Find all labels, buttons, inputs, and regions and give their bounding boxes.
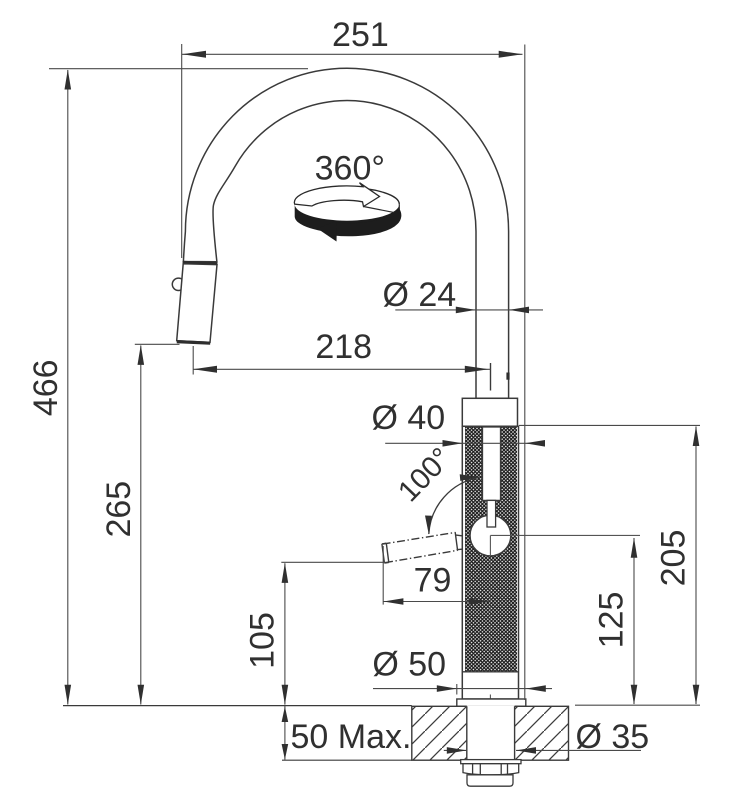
- svg-text:218: 218: [315, 328, 372, 366]
- svg-text:265: 265: [100, 481, 138, 538]
- svg-text:125: 125: [593, 592, 631, 649]
- svg-text:205: 205: [655, 530, 693, 587]
- svg-text:Ø 50: Ø 50: [372, 646, 446, 684]
- svg-text:466: 466: [27, 359, 65, 416]
- svg-text:50 Max.: 50 Max.: [291, 718, 412, 756]
- svg-text:Ø 40: Ø 40: [371, 399, 445, 437]
- svg-text:79: 79: [414, 562, 452, 600]
- svg-text:Ø 24: Ø 24: [382, 276, 456, 314]
- svg-text:251: 251: [332, 16, 389, 54]
- svg-text:105: 105: [244, 612, 282, 669]
- svg-text:360°: 360°: [315, 150, 385, 188]
- svg-text:Ø 35: Ø 35: [575, 718, 649, 756]
